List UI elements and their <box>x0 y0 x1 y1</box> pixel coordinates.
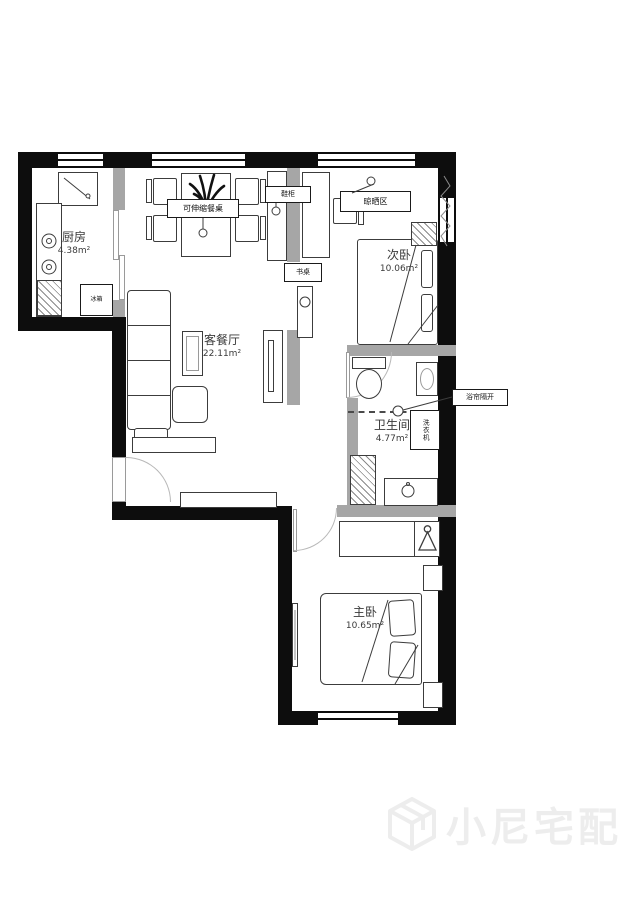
wall-top-3 <box>245 152 318 168</box>
hanger-icon <box>417 524 438 554</box>
window-top-bedroom2 <box>318 152 415 168</box>
shoe-cabinet <box>267 171 287 261</box>
wall-kitchen-bottom <box>18 317 126 331</box>
ottoman <box>172 386 208 423</box>
fridge-box: 冰箱 <box>80 284 113 316</box>
bedroom2-room-label: 次卧 10.06m² <box>372 248 426 275</box>
wall-left-mid <box>112 331 126 457</box>
bathroom-vanity <box>384 478 438 506</box>
drying-area-callout: 晾晒区 <box>340 191 411 212</box>
kitchen-area: 4.38m² <box>48 246 100 258</box>
living-room-label: 客餐厅 22.11m² <box>192 333 252 360</box>
living-area: 22.11m² <box>192 349 252 361</box>
master-door-arc <box>294 508 337 551</box>
kitchen-sink-counter <box>58 172 98 206</box>
partition-master-top <box>337 505 456 517</box>
bathroom-name: 卫生间 <box>368 418 416 434</box>
hall-cabinet <box>302 172 330 258</box>
dining-table-callout-text: 可伸缩餐桌 <box>183 205 223 213</box>
ac-unit <box>411 222 437 246</box>
wall-left-upper <box>18 152 32 331</box>
window-top-kitchen <box>58 152 103 168</box>
master-name: 主卧 <box>336 605 394 621</box>
nightstand <box>423 682 443 708</box>
sofa-cushion-line <box>128 395 170 396</box>
desk-callout: 书桌 <box>284 263 322 282</box>
chair-back <box>146 179 152 203</box>
wall-master-left <box>278 520 292 716</box>
toilet-tank <box>352 357 386 369</box>
wall-bottom-2 <box>398 711 456 725</box>
tv <box>268 340 274 392</box>
bathroom-area: 4.77m² <box>368 434 416 446</box>
shower-curtain-callout: 浴帘隔开 <box>452 389 508 406</box>
partition-kitchen-bottom <box>113 300 125 317</box>
entry-cabinet <box>180 492 277 508</box>
bathroom-sink-basin <box>420 368 434 390</box>
wall-top-2 <box>103 152 152 168</box>
partition-kitchen-top <box>113 168 125 210</box>
desk <box>297 286 313 338</box>
fridge-label: 冰箱 <box>90 297 102 303</box>
desk-callout-text: 书桌 <box>296 269 310 276</box>
mirror <box>292 603 298 667</box>
window-right-bedroom2 <box>438 198 456 242</box>
chair-back <box>260 216 266 240</box>
watermark: 小尼宅配 <box>388 795 622 853</box>
annotation-overlay <box>0 0 640 905</box>
kitchen-sliding-door <box>113 210 119 260</box>
entry-door-arc <box>126 457 171 502</box>
wall-right-1 <box>438 152 456 198</box>
dining-chair <box>235 215 259 242</box>
sofa-cushion-line <box>128 325 170 326</box>
wall-right-2 <box>438 242 456 725</box>
entry-door-frame <box>112 457 126 502</box>
pillow <box>421 294 433 332</box>
partition-dining-corridor <box>287 168 300 262</box>
shoe-cabinet-callout: 鞋柜 <box>265 186 311 203</box>
bathroom-room-label: 卫生间 4.77m² <box>368 418 416 445</box>
partition-living-corridor <box>287 330 300 405</box>
shower-curtain-callout-text: 浴帘隔开 <box>466 394 494 401</box>
shoe-cabinet-callout-text: 鞋柜 <box>281 191 295 198</box>
window-top-dining <box>152 152 245 168</box>
wall-left-mid-2 <box>112 502 126 520</box>
master-room-label: 主卧 10.65m² <box>336 605 394 632</box>
shower-tray <box>350 455 376 505</box>
washing-machine-text: 洗衣机 <box>422 419 429 442</box>
toilet-bowl <box>356 369 382 399</box>
chair-back <box>146 216 152 240</box>
window-bottom-master <box>318 711 398 725</box>
cube-logo-icon <box>388 797 436 851</box>
sofa-cushion-line <box>128 360 170 361</box>
drying-area-callout-text: 晾晒区 <box>364 198 388 206</box>
dining-table-callout: 可伸缩餐桌 <box>167 199 239 218</box>
kitchen-corner-cabinet <box>37 280 62 316</box>
floor-plan: 冰箱 厨房 4.38m² 可伸缩餐桌 鞋柜 书桌 晾 <box>0 0 640 905</box>
kitchen-sliding-door-2 <box>119 255 125 300</box>
dining-chair <box>153 215 177 242</box>
kitchen-room-label: 厨房 4.38m² <box>48 230 100 257</box>
living-name: 客餐厅 <box>192 333 252 349</box>
wardrobe-divider <box>414 522 415 556</box>
master-area: 10.65m² <box>336 621 394 633</box>
wall-living-bottom <box>112 506 292 520</box>
pillow <box>388 641 416 679</box>
sideboard <box>132 437 216 453</box>
bedroom2-name: 次卧 <box>372 248 426 264</box>
watermark-text: 小尼宅配 <box>446 795 622 853</box>
bedroom2-area: 10.06m² <box>372 264 426 276</box>
nightstand <box>423 565 443 591</box>
kitchen-name: 厨房 <box>48 230 100 246</box>
